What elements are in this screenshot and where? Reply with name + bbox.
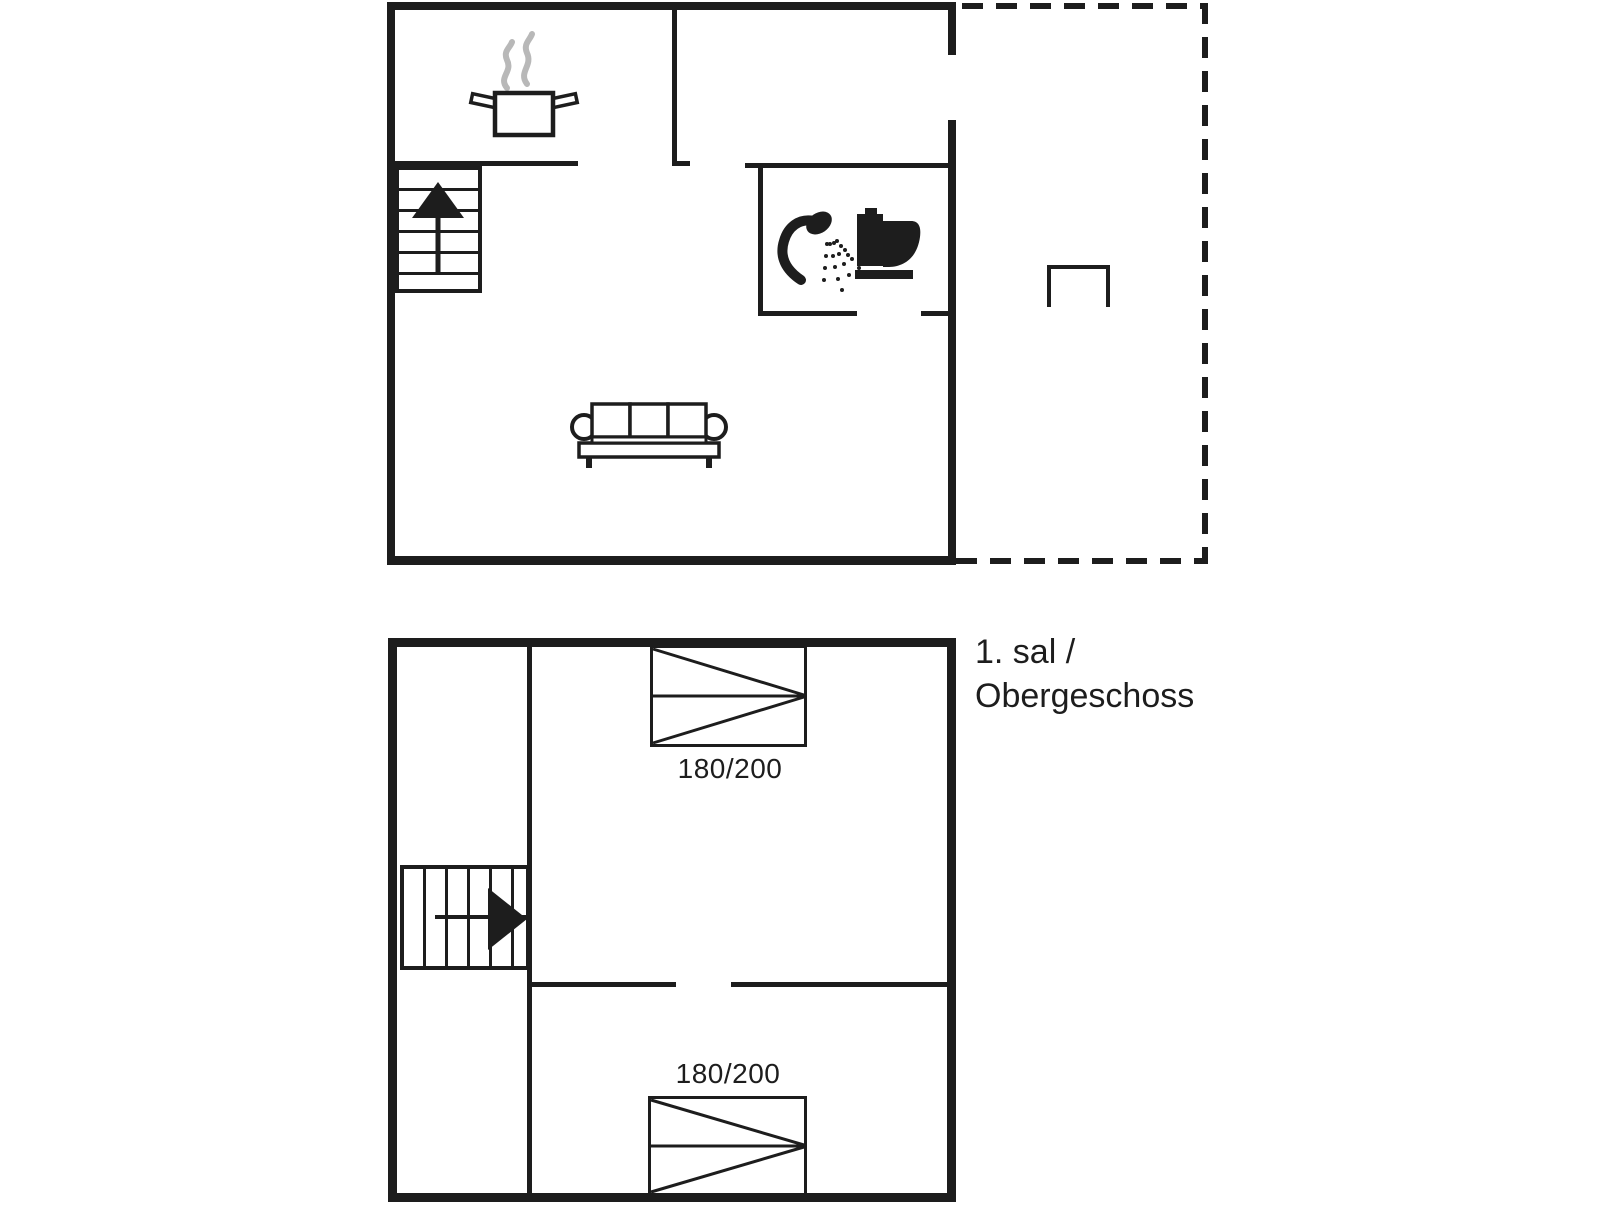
right-arrow-icon	[400, 865, 530, 970]
hall-wall-right	[731, 982, 947, 987]
bed-icon	[648, 1096, 807, 1196]
upper-floor-plan: 180/200 180/200 1. sal / Obergeschoss	[0, 0, 1606, 1205]
wall-left	[388, 638, 397, 1202]
floor-title-line2: Obergeschoss	[975, 674, 1194, 718]
hall-wall-left	[530, 982, 676, 987]
bed-icon	[650, 645, 807, 747]
bed-size-label: 180/200	[650, 753, 810, 785]
wall-right	[947, 638, 956, 1202]
floor-title: 1. sal / Obergeschoss	[975, 630, 1194, 718]
floorplan-canvas: 180/200 180/200 1. sal / Obergeschoss	[0, 0, 1606, 1205]
floor-title-line1: 1. sal /	[975, 630, 1194, 674]
bed-size-label: 180/200	[648, 1058, 808, 1090]
